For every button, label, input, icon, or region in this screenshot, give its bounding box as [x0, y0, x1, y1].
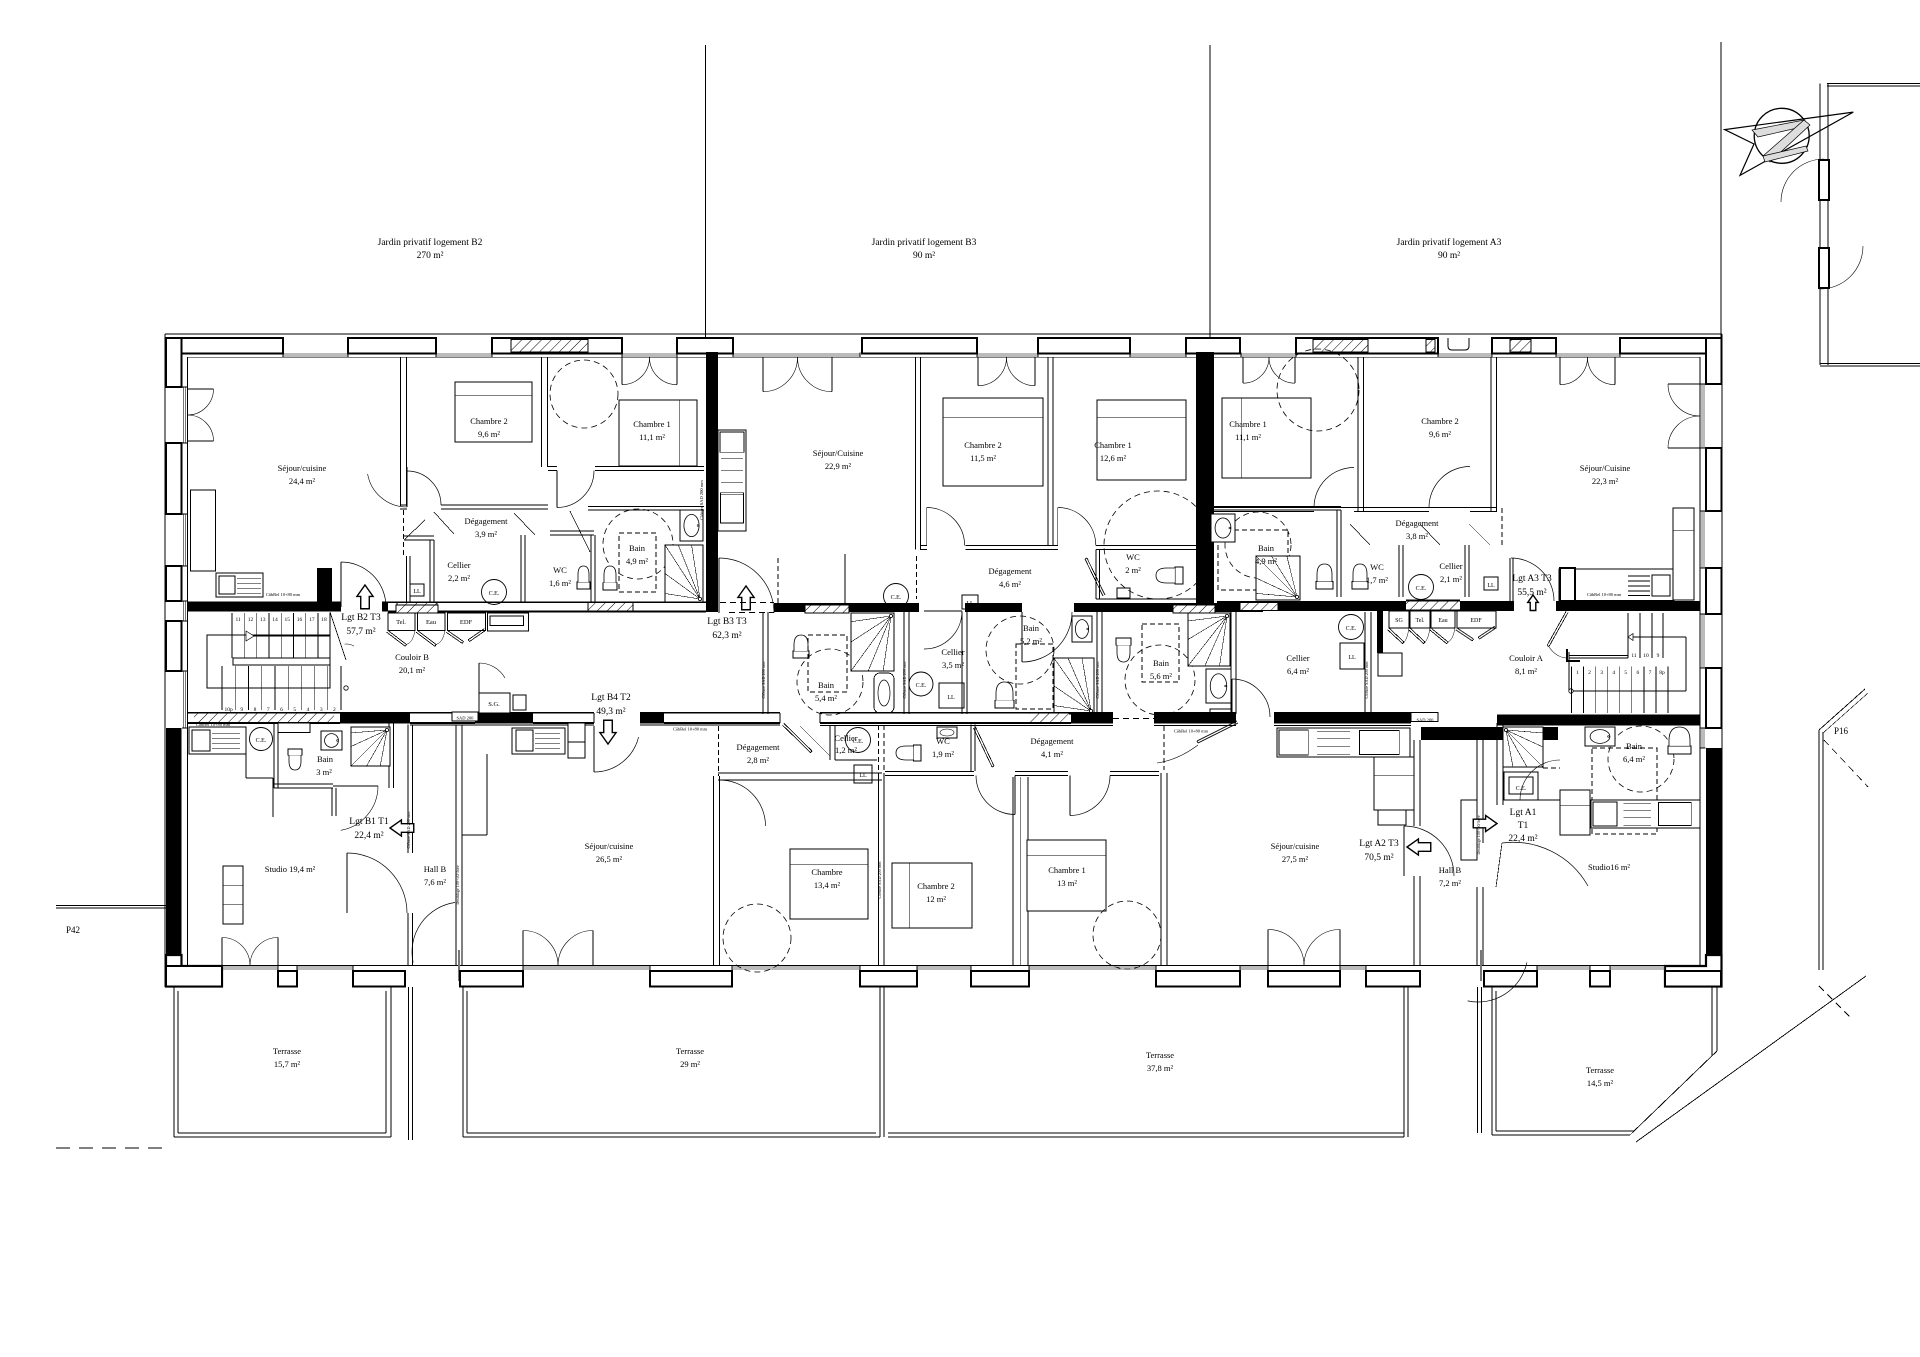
svg-text:4,9 m²: 4,9 m²: [1255, 556, 1277, 566]
svg-text:2 m²: 2 m²: [1125, 565, 1141, 575]
svg-text:Bain: Bain: [1153, 658, 1170, 668]
svg-text:3: 3: [1600, 670, 1603, 676]
svg-text:6,4 m²: 6,4 m²: [1623, 754, 1645, 764]
svg-text:2,8 m²: 2,8 m²: [747, 755, 769, 765]
svg-text:5,4 m²: 5,4 m²: [815, 693, 837, 703]
svg-text:Cellier: Cellier: [1286, 653, 1309, 663]
svg-text:LL: LL: [1487, 583, 1495, 589]
svg-text:8: 8: [254, 707, 257, 713]
svg-text:Dégagement: Dégagement: [737, 742, 781, 752]
svg-text:13 m²: 13 m²: [1057, 878, 1077, 888]
svg-text:5: 5: [293, 707, 296, 713]
svg-text:4,9 m²: 4,9 m²: [626, 556, 648, 566]
svg-text:C.E.: C.E.: [916, 683, 927, 689]
svg-text:37,8 m²: 37,8 m²: [1147, 1063, 1174, 1073]
svg-text:27,5 m²: 27,5 m²: [1282, 854, 1309, 864]
svg-text:6,4 m²: 6,4 m²: [1287, 666, 1309, 676]
svg-text:6: 6: [1636, 670, 1639, 676]
svg-text:9: 9: [240, 707, 243, 713]
svg-text:9,6 m²: 9,6 m²: [1429, 429, 1451, 439]
svg-text:Clôture SAD 200 mm: Clôture SAD 200 mm: [406, 811, 411, 849]
svg-text:LL: LL: [947, 695, 955, 701]
svg-text:WC: WC: [1370, 562, 1384, 572]
svg-text:S.G.: S.G.: [488, 701, 500, 708]
svg-text:Lgt B4 T2: Lgt B4 T2: [591, 693, 631, 703]
svg-text:Clôture SAD 200 mm: Clôture SAD 200 mm: [761, 661, 766, 699]
svg-text:Chambre: Chambre: [811, 867, 842, 877]
svg-text:11: 11: [236, 617, 242, 623]
svg-text:22,4 m²: 22,4 m²: [354, 831, 383, 841]
svg-text:22,3 m²: 22,3 m²: [1592, 476, 1619, 486]
svg-text:Tel.: Tel.: [1415, 618, 1425, 624]
svg-text:8p: 8p: [1659, 670, 1665, 676]
svg-text:12 m²: 12 m²: [926, 894, 946, 904]
svg-text:4,1 m²: 4,1 m²: [1041, 749, 1063, 759]
svg-text:22,4 m²: 22,4 m²: [1508, 834, 1537, 844]
svg-text:SG: SG: [1395, 618, 1403, 624]
svg-text:Dégagement: Dégagement: [1031, 736, 1075, 746]
svg-text:14: 14: [272, 617, 278, 623]
svg-text:Hall B: Hall B: [424, 864, 447, 874]
svg-text:C.E.: C.E.: [1416, 586, 1427, 592]
svg-text:T1: T1: [1518, 821, 1529, 831]
svg-text:Eau: Eau: [426, 619, 437, 626]
svg-text:Séjour/cuisine: Séjour/cuisine: [1271, 841, 1320, 851]
svg-text:Studio 19,4 m²: Studio 19,4 m²: [265, 864, 316, 874]
svg-text:Clôture SAD 200 mm: Clôture SAD 200 mm: [902, 661, 907, 699]
svg-text:Terrasse: Terrasse: [1146, 1050, 1174, 1060]
svg-text:Terrasse: Terrasse: [676, 1046, 704, 1056]
svg-text:Jardin privatif logement B3: Jardin privatif logement B3: [872, 237, 977, 248]
svg-text:11,5 m²: 11,5 m²: [970, 453, 996, 463]
svg-text:11: 11: [1631, 653, 1637, 659]
svg-text:CâbBel 10+80 mm: CâbBel 10+80 mm: [1174, 729, 1209, 734]
svg-text:2: 2: [333, 707, 336, 713]
svg-text:EDF: EDF: [460, 619, 473, 626]
svg-text:C.E.: C.E.: [853, 739, 864, 745]
svg-text:3,9 m²: 3,9 m²: [475, 529, 497, 539]
svg-text:C.E.: C.E.: [1516, 786, 1527, 792]
svg-text:4: 4: [1612, 670, 1615, 676]
svg-text:WC: WC: [936, 736, 950, 746]
svg-text:9,6 m²: 9,6 m²: [478, 429, 500, 439]
svg-text:Séjour/cuisine: Séjour/cuisine: [585, 841, 634, 851]
svg-text:EDF: EDF: [1470, 618, 1482, 624]
svg-text:8,1 m²: 8,1 m²: [1515, 666, 1537, 676]
svg-text:Studio16 m²: Studio16 m²: [1588, 862, 1630, 872]
svg-text:Bain: Bain: [629, 543, 646, 553]
svg-text:Jardin privatif logement B2: Jardin privatif logement B2: [378, 237, 483, 248]
svg-text:15: 15: [285, 617, 291, 623]
svg-text:C.E.: C.E.: [256, 738, 267, 744]
svg-text:C.E.: C.E.: [891, 595, 902, 601]
svg-text:3: 3: [320, 707, 323, 713]
svg-text:5,2 m²: 5,2 m²: [1020, 636, 1042, 646]
svg-text:Lgt A3 T3: Lgt A3 T3: [1512, 574, 1552, 584]
svg-text:Chambre 2: Chambre 2: [470, 416, 508, 426]
svg-text:70,5 m²: 70,5 m²: [1364, 853, 1393, 863]
svg-text:1,2 m²: 1,2 m²: [835, 745, 857, 755]
svg-text:10p: 10p: [224, 707, 233, 713]
svg-text:3 m²: 3 m²: [316, 767, 332, 777]
svg-text:Bain: Bain: [1023, 623, 1040, 633]
svg-text:P42: P42: [66, 925, 80, 935]
svg-text:1: 1: [1576, 670, 1579, 676]
svg-text:CâbBel 10+80 mm: CâbBel 10+80 mm: [196, 722, 231, 727]
svg-text:LL: LL: [413, 589, 421, 595]
svg-text:9: 9: [1657, 653, 1660, 659]
svg-text:CâbBel 10+80 mm: CâbBel 10+80 mm: [266, 592, 301, 597]
svg-text:Terrasse: Terrasse: [273, 1046, 301, 1056]
svg-text:90 m²: 90 m²: [1438, 251, 1460, 261]
svg-text:Chambre 2: Chambre 2: [964, 440, 1002, 450]
svg-text:CâbBel 10+80 mm: CâbBel 10+80 mm: [673, 727, 708, 732]
svg-text:SAD 200: SAD 200: [457, 716, 475, 721]
svg-text:Bain: Bain: [1258, 543, 1275, 553]
svg-text:Chambre 2: Chambre 2: [917, 881, 955, 891]
svg-text:13,4 m²: 13,4 m²: [814, 880, 841, 890]
svg-text:1,7 m²: 1,7 m²: [1366, 575, 1388, 585]
svg-text:Clôture SAD 200 mm: Clôture SAD 200 mm: [1200, 375, 1205, 415]
svg-text:Jardin privatif logement A3: Jardin privatif logement A3: [1397, 237, 1502, 248]
svg-text:5,6 m²: 5,6 m²: [1150, 671, 1172, 681]
svg-text:Séjour/Cuisine: Séjour/Cuisine: [813, 448, 864, 458]
svg-text:Doublage 100+50/3née: Doublage 100+50/3née: [455, 865, 460, 904]
svg-text:62,3 m²: 62,3 m²: [712, 631, 741, 641]
svg-text:Lgt A2 T3: Lgt A2 T3: [1359, 839, 1399, 849]
svg-text:6: 6: [280, 707, 283, 713]
svg-text:4: 4: [307, 707, 310, 713]
svg-text:17: 17: [309, 617, 315, 623]
svg-text:2,1 m²: 2,1 m²: [1440, 574, 1462, 584]
svg-text:5: 5: [1624, 670, 1627, 676]
svg-text:Chambre 2: Chambre 2: [1421, 416, 1459, 426]
svg-text:24,4 m²: 24,4 m²: [289, 476, 316, 486]
svg-text:Hall B: Hall B: [1439, 865, 1462, 875]
svg-text:LL: LL: [859, 773, 867, 779]
svg-text:C.E.: C.E.: [1346, 626, 1357, 632]
svg-text:Lgt A1: Lgt A1: [1510, 808, 1537, 818]
svg-text:Terrasse: Terrasse: [1586, 1065, 1614, 1075]
svg-text:LL: LL: [966, 601, 974, 607]
svg-text:1,9 m²: 1,9 m²: [932, 749, 954, 759]
svg-text:11,1 m²: 11,1 m²: [639, 432, 665, 442]
svg-text:Dégagement: Dégagement: [465, 516, 509, 526]
svg-text:4,6 m²: 4,6 m²: [999, 579, 1021, 589]
svg-text:Couloir A: Couloir A: [1509, 653, 1544, 663]
svg-text:Chambre 1: Chambre 1: [1229, 419, 1267, 429]
svg-text:12: 12: [248, 617, 254, 623]
svg-text:Tel.: Tel.: [396, 619, 406, 626]
svg-text:18: 18: [321, 617, 327, 623]
svg-text:10: 10: [1643, 653, 1649, 659]
svg-text:Cellier: Cellier: [941, 647, 964, 657]
svg-text:26,5 m²: 26,5 m²: [596, 854, 623, 864]
svg-text:CâbBel 10+80 mm: CâbBel 10+80 mm: [1587, 592, 1622, 597]
svg-text:2,2 m²: 2,2 m²: [448, 573, 470, 583]
svg-text:49,3 m²: 49,3 m²: [596, 707, 625, 717]
svg-text:P16: P16: [1834, 726, 1849, 736]
svg-text:Bain: Bain: [1626, 741, 1643, 751]
svg-text:55,5 m²: 55,5 m²: [1517, 588, 1546, 598]
svg-text:3,5 m²: 3,5 m²: [942, 660, 964, 670]
svg-text:2: 2: [1588, 670, 1591, 676]
svg-text:16: 16: [297, 617, 303, 623]
svg-text:1,6 m²: 1,6 m²: [549, 578, 571, 588]
svg-text:Lgt B3 T3: Lgt B3 T3: [707, 617, 747, 627]
svg-text:7: 7: [1649, 670, 1652, 676]
svg-text:14,5 m²: 14,5 m²: [1587, 1078, 1614, 1088]
svg-text:SAD 200: SAD 200: [1417, 718, 1435, 723]
svg-text:Doublage 100+50/3née: Doublage 100+50/3née: [1476, 815, 1481, 854]
svg-text:7,6 m²: 7,6 m²: [424, 877, 446, 887]
svg-text:Chambre 1: Chambre 1: [1094, 440, 1132, 450]
svg-text:C.E.: C.E.: [489, 591, 500, 597]
svg-text:Lgt B1 T1: Lgt B1 T1: [349, 817, 389, 827]
svg-text:LL: LL: [1348, 655, 1356, 661]
svg-text:15,7 m²: 15,7 m²: [274, 1059, 301, 1069]
svg-text:3,8 m²: 3,8 m²: [1406, 531, 1428, 541]
svg-text:Clôture SAD 200 mm: Clôture SAD 200 mm: [877, 861, 882, 899]
svg-text:Bain: Bain: [818, 680, 835, 690]
svg-text:13: 13: [260, 617, 266, 623]
svg-text:Eau: Eau: [1438, 618, 1447, 624]
svg-text:Dégagement: Dégagement: [1396, 518, 1440, 528]
svg-text:Chambre 1: Chambre 1: [633, 419, 671, 429]
svg-text:270 m²: 270 m²: [417, 251, 444, 261]
svg-text:20,1 m²: 20,1 m²: [399, 665, 426, 675]
svg-text:7: 7: [267, 707, 270, 713]
svg-text:Séjour/Cuisine: Séjour/Cuisine: [1580, 463, 1631, 473]
svg-text:7,2 m²: 7,2 m²: [1439, 878, 1461, 888]
svg-text:57,7 m²: 57,7 m²: [346, 627, 375, 637]
svg-text:Bain: Bain: [317, 754, 334, 764]
svg-text:Chambre 1: Chambre 1: [1048, 865, 1086, 875]
svg-text:22,9 m²: 22,9 m²: [825, 461, 852, 471]
svg-text:Dégagement: Dégagement: [989, 566, 1033, 576]
svg-text:12,6 m²: 12,6 m²: [1100, 453, 1127, 463]
svg-text:Séjour/cuisine: Séjour/cuisine: [278, 463, 327, 473]
svg-text:Cellier: Cellier: [1439, 561, 1462, 571]
svg-text:WC: WC: [1126, 552, 1140, 562]
svg-text:Couloir B: Couloir B: [395, 652, 429, 662]
svg-text:WC: WC: [553, 565, 567, 575]
svg-text:Clôture SAD 200 mm: Clôture SAD 200 mm: [1095, 661, 1100, 699]
svg-text:Clôture SAD 200 mm: Clôture SAD 200 mm: [699, 480, 704, 520]
svg-text:90 m²: 90 m²: [913, 251, 935, 261]
svg-text:Lgt B2 T3: Lgt B2 T3: [341, 613, 381, 623]
svg-text:11,1 m²: 11,1 m²: [1235, 432, 1261, 442]
svg-text:Cellier: Cellier: [447, 560, 470, 570]
svg-text:Clôture SAD 200 mm: Clôture SAD 200 mm: [1364, 661, 1369, 699]
svg-text:29 m²: 29 m²: [680, 1059, 700, 1069]
